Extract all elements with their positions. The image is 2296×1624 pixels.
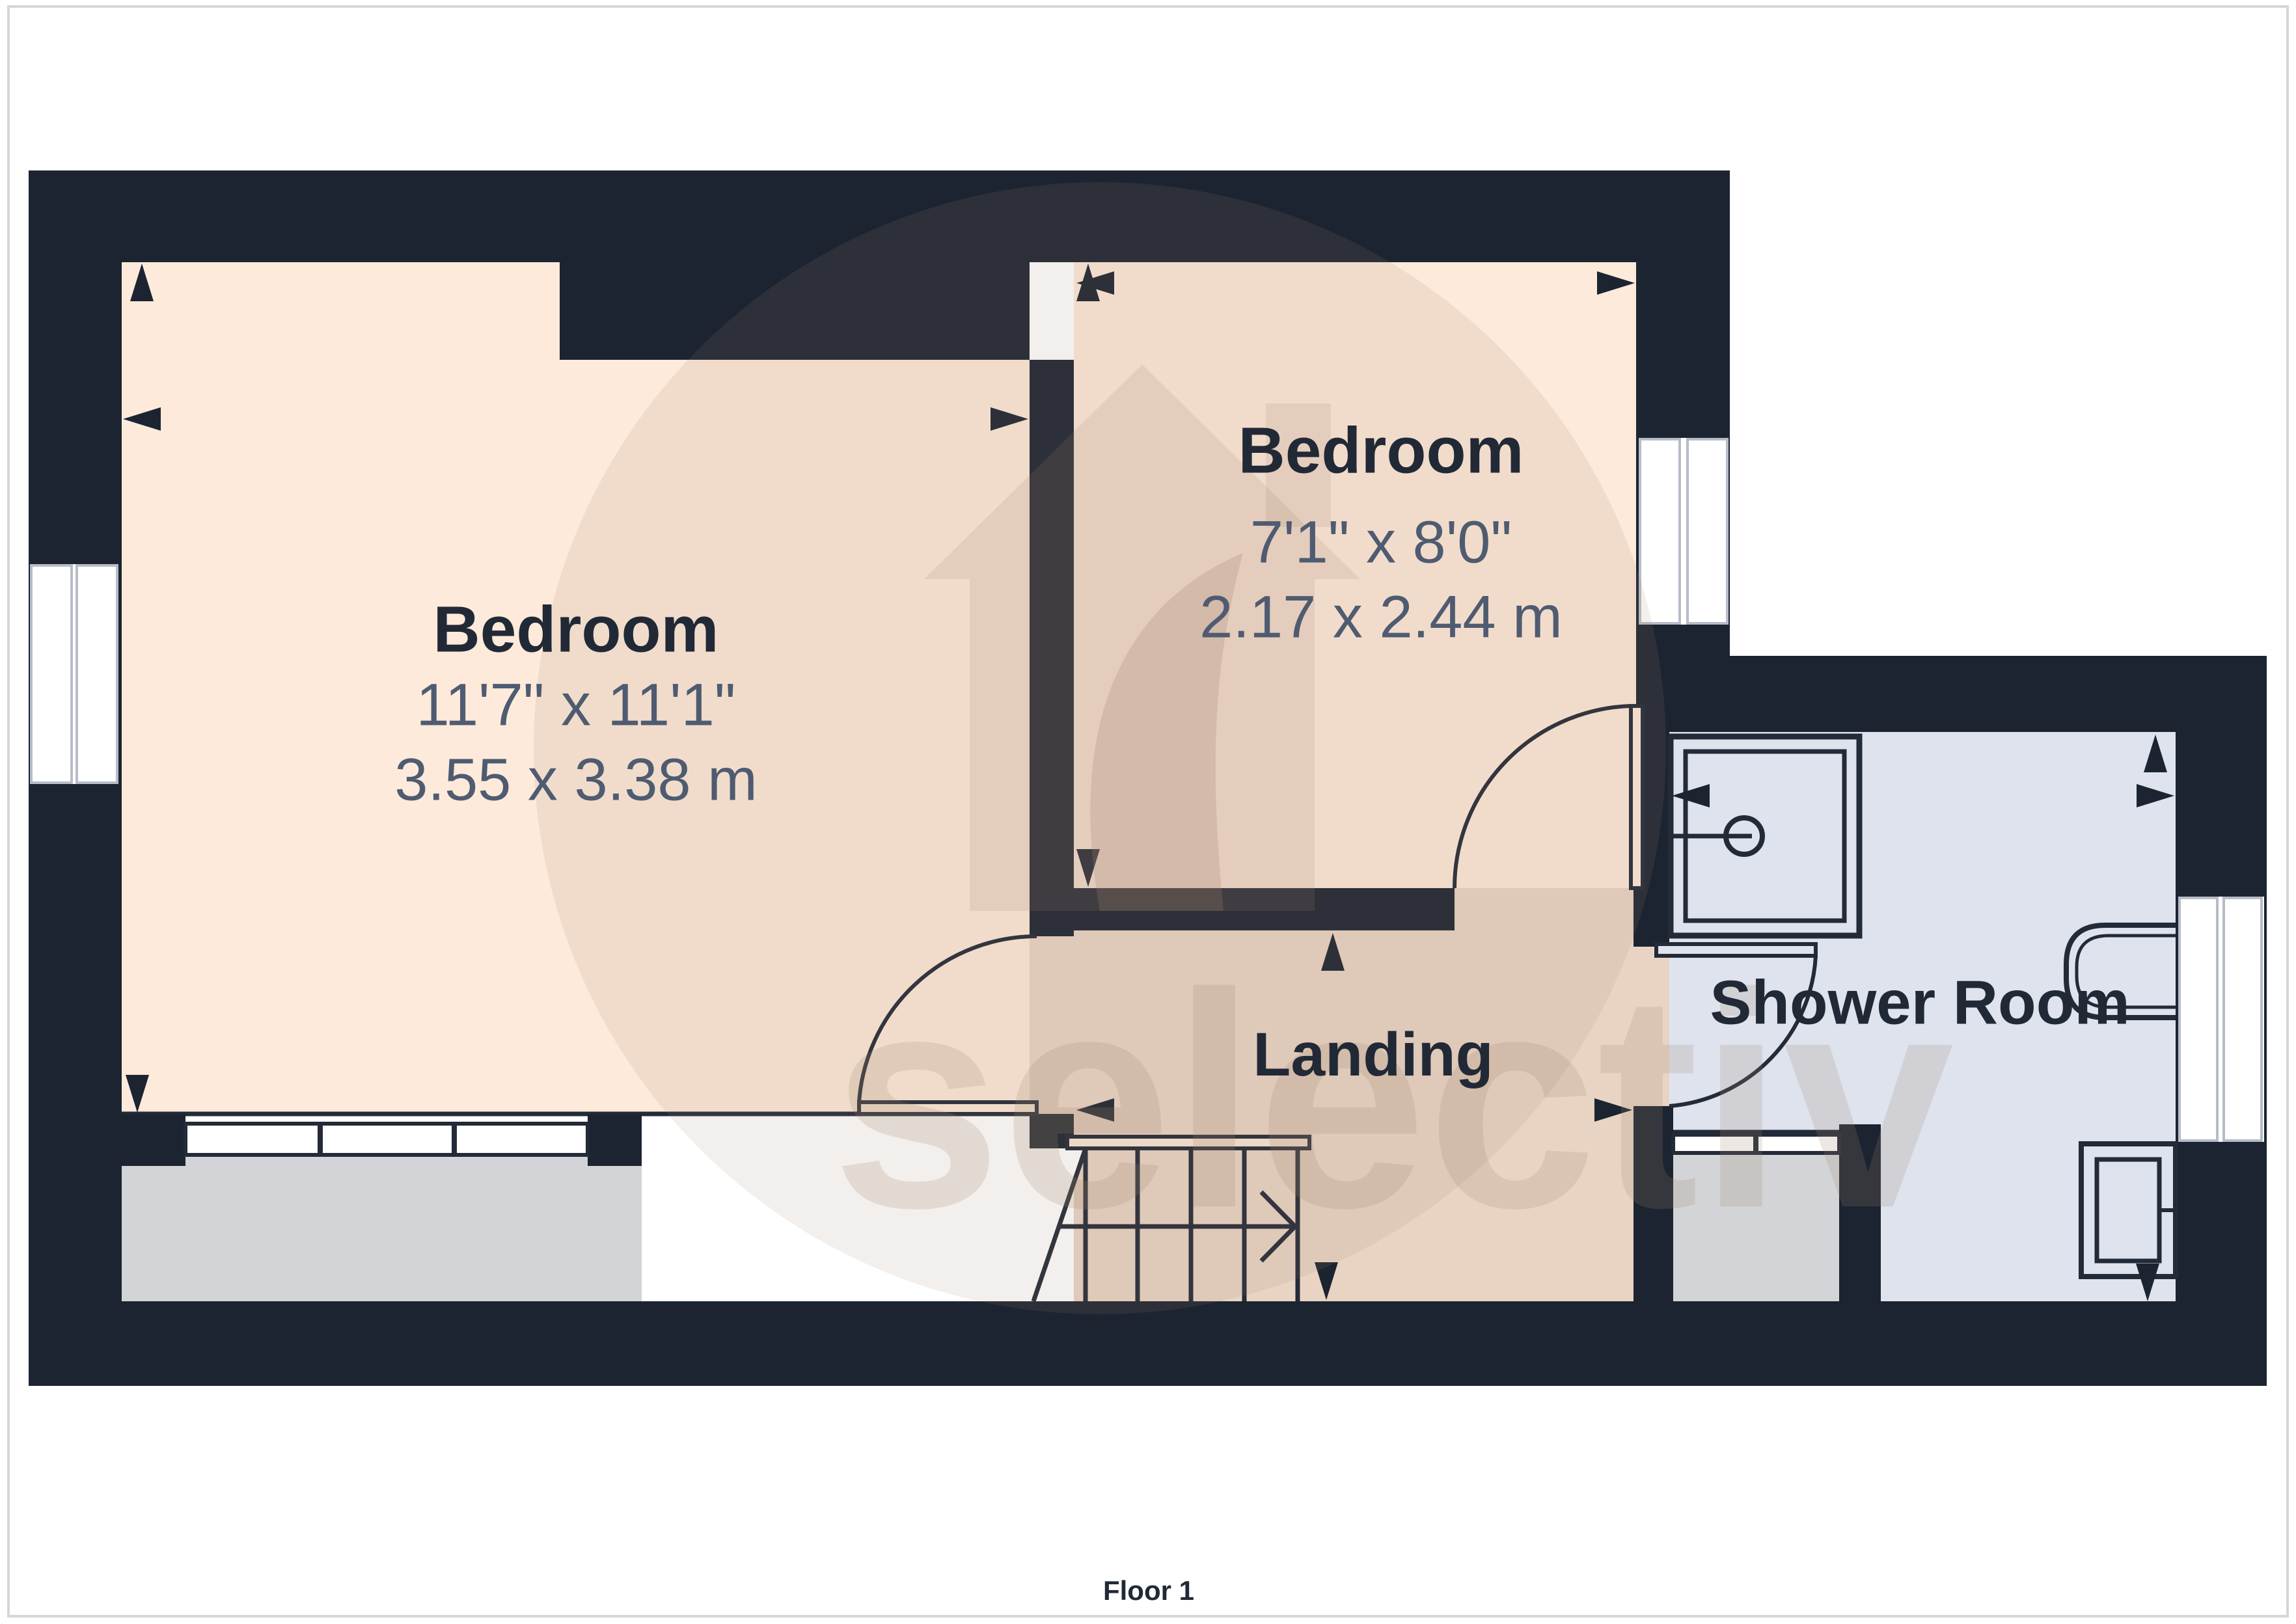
bedroom-bay-floor — [120, 1152, 642, 1303]
bedroom-right-title: Bedroom — [1238, 414, 1524, 487]
bedroom-right-dim-metric: 2.17 x 2.44 m — [1199, 584, 1562, 650]
window-bedroom-bay — [185, 1124, 588, 1155]
window-bedroom-right — [1639, 438, 1729, 625]
bedroom-left-dim-imperial: 11'7" x 11'1" — [417, 671, 736, 738]
landing-title: Landing — [1253, 1020, 1493, 1089]
shower-room-title: Shower Room — [1710, 968, 2129, 1037]
floorplan-page: selectiv Bedroom 11'7" x 11'1" 3.55 x 3.… — [0, 0, 2296, 1624]
window-shower-right — [2178, 897, 2264, 1142]
bedroom-left-dim-metric: 3.55 x 3.38 m — [394, 746, 757, 813]
floor-label: Floor 1 — [1103, 1575, 1194, 1606]
bedroom-right-dim-imperial: 7'1" x 8'0" — [1250, 509, 1512, 575]
floorplan-canvas: selectiv Bedroom 11'7" x 11'1" 3.55 x 3.… — [0, 0, 2296, 1624]
wall-bay-stub-left — [120, 1114, 185, 1166]
bedroom-left-title: Bedroom — [433, 593, 719, 666]
wall-bay-stub-right — [588, 1114, 642, 1166]
wall-bottom — [29, 1301, 2267, 1386]
window-bedroom-left — [30, 564, 118, 784]
